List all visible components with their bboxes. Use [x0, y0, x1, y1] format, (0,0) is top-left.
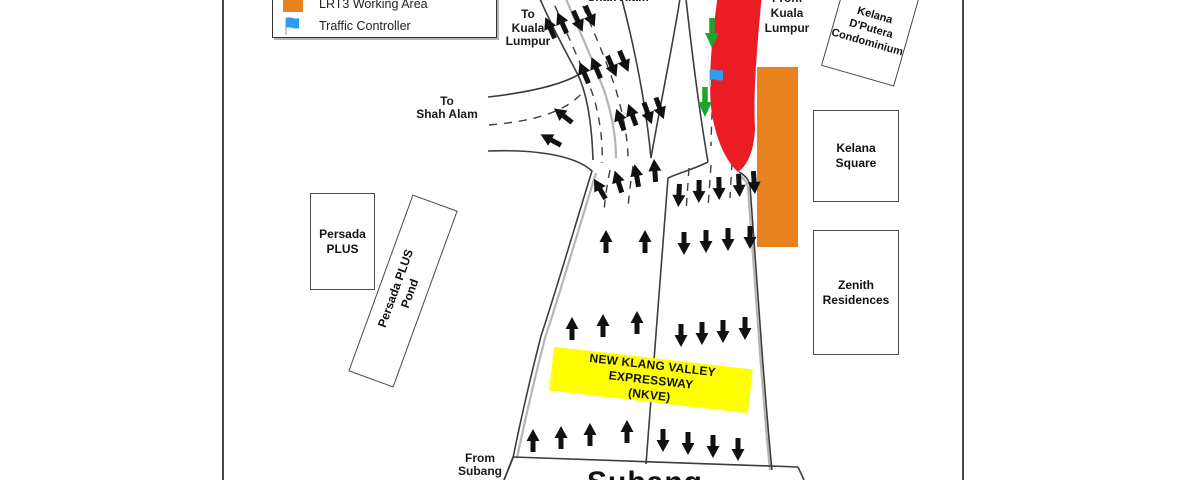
label-shah-alam-top: Shah Alam — [580, 0, 656, 5]
road-closure-area — [710, 0, 762, 172]
up-arrow-icon — [584, 423, 597, 446]
down-arrow-icon — [675, 324, 688, 347]
down-arrow-icon — [602, 53, 623, 79]
label-subang-nameplate: Subang — [560, 466, 730, 480]
label-to-kuala-lumpur: To Kuala Lumpur — [498, 8, 558, 49]
up-arrow-icon — [555, 426, 568, 449]
up-arrow-icon — [586, 55, 607, 81]
down-arrow-icon — [692, 180, 705, 203]
down-arrow-icon — [696, 322, 709, 345]
up-arrow-icon — [639, 230, 652, 253]
up-arrow-icon — [622, 102, 642, 128]
down-arrow-icon — [678, 232, 691, 255]
down-arrow-icon — [682, 432, 695, 455]
down-arrow-icon — [732, 438, 745, 461]
working-area-swatch-icon — [283, 0, 303, 12]
down-arrow-icon — [650, 95, 670, 121]
building-zenith-residences: Zenith Residences — [813, 230, 899, 355]
road-network-drawing — [0, 0, 1200, 480]
building-persada-plus: Persada PLUS — [310, 193, 375, 290]
down-arrow-icon — [700, 230, 713, 253]
legend-label: Traffic Controller — [319, 19, 411, 33]
down-arrow-icon — [638, 100, 658, 126]
down-arrow-icon — [657, 429, 670, 452]
legend-item-traffic-controller: Traffic Controller — [283, 15, 496, 37]
label-from-subang: From Subang — [448, 452, 512, 477]
building-kelana-square: Kelana Square — [813, 110, 899, 202]
label-to-shah-alam: To Shah Alam — [412, 95, 482, 121]
up-arrow-icon — [527, 429, 540, 452]
up-arrow-icon — [648, 159, 663, 183]
down-arrow-icon — [739, 317, 752, 340]
label-from-kuala-lumpur: From Kuala Lumpur — [758, 0, 816, 36]
up-arrow-icon — [566, 317, 579, 340]
map-legend: LRT3 Working Area Traffic Controller — [272, 0, 497, 38]
legend-label: LRT3 Working Area — [319, 0, 428, 11]
down-arrow-icon — [672, 184, 686, 208]
up-arrow-icon — [631, 311, 644, 334]
traffic-plan-canvas: To Kuala Lumpur Shah Alam To Shah Alam F… — [0, 0, 1200, 480]
up-arrow-icon — [600, 230, 613, 253]
up-arrow-icon — [538, 129, 564, 151]
building-label: Kelana Square — [836, 141, 877, 171]
down-arrow-icon — [717, 320, 730, 343]
down-arrow-icon — [722, 228, 735, 251]
building-label: Kelana D'Putera Condominium — [830, 0, 913, 59]
building-label: Persada PLUS — [319, 227, 366, 257]
building-label: Zenith Residences — [823, 278, 890, 308]
legend-item-working-area: LRT3 Working Area — [283, 0, 496, 15]
up-arrow-icon — [608, 169, 627, 195]
down-arrow-icon — [707, 435, 720, 458]
up-arrow-icon — [597, 314, 610, 337]
down-arrow-icon — [732, 174, 746, 198]
up-arrow-icon — [621, 420, 634, 443]
down-arrow-icon — [712, 177, 725, 200]
traffic-controller-flag-icon — [283, 17, 303, 35]
lrt3-working-area — [757, 67, 798, 247]
